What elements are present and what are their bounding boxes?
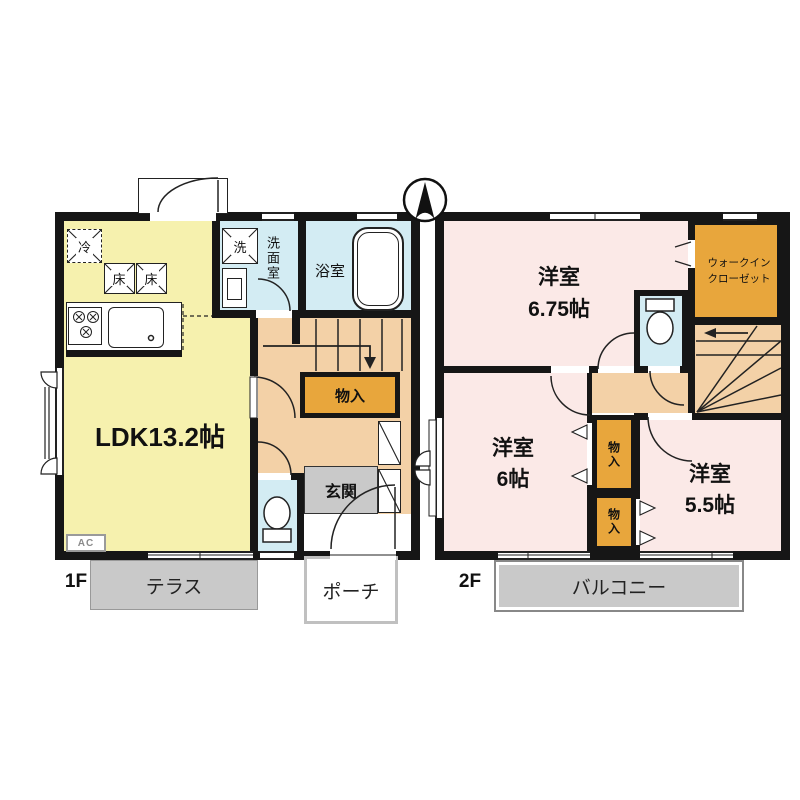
f2-bedroom1-door-gap (598, 366, 634, 373)
f1-wall-wet-bottom (212, 310, 411, 318)
washbasin-bowl (227, 278, 242, 300)
f1-wall-toilet-right (297, 473, 304, 551)
f1-toilet-window (260, 551, 294, 560)
bedroom2-size: 6帖 (497, 464, 530, 495)
floor-hatch-label-1: 床 (111, 270, 127, 286)
bathtub-inner (357, 232, 399, 306)
f1-ldk-door-gap (250, 376, 258, 418)
f2-bedroom3-door-gap (648, 413, 692, 420)
floorplan-canvas: 玄関 物入 AC テラス ポーチ 1F LDK13.2帖 洗面室 浴室 冷 床 … (0, 0, 800, 800)
bath-label: 浴室 (306, 260, 354, 280)
bedroom1-size: 6.75帖 (528, 294, 590, 326)
f1-toilet-door-gap (258, 473, 291, 480)
f2-stairs-area (695, 325, 781, 413)
porch-label: ポーチ (322, 577, 379, 604)
f2-window-wic-top (723, 212, 757, 221)
balcony: バルコニー (494, 560, 744, 612)
f2-wall-wic-bottom (688, 318, 781, 325)
f2-toilet-wall-right (682, 290, 688, 372)
f2-bedroom2-door-gap (551, 366, 589, 373)
f1-storage-box: 物入 (300, 372, 400, 418)
f1-shoe-cabinet-2 (378, 469, 401, 513)
f1-terrace-slider (148, 551, 253, 560)
f2-casement-window (435, 418, 444, 518)
f1-entrance-door-gap (330, 551, 396, 560)
f2-balcony-slider-right (640, 551, 733, 560)
stove-icon (68, 307, 102, 345)
bedroom2-label: 洋室 6帖 (458, 432, 568, 496)
kitchen-counter-edge (66, 350, 182, 357)
f2-closet2-door-strip (636, 499, 640, 545)
f1-wall-stairs-stub (292, 318, 300, 344)
porch: ポーチ (304, 556, 398, 624)
f2-toilet-room (640, 296, 682, 366)
ac-tag: AC (66, 534, 106, 552)
floor-label-1f: 1F (56, 570, 96, 594)
wic-line1: ウォークイン (708, 255, 771, 271)
entrance-label: 玄関 (325, 478, 357, 502)
f2-hallway (592, 373, 688, 413)
f1-toilet-room (258, 480, 297, 551)
washer-label: 洗 (231, 237, 249, 255)
storage-label: 物入 (335, 385, 365, 406)
ldk-label: LDK13.2帖 (70, 418, 250, 452)
f1-back-door-nook (138, 178, 228, 214)
f1-casement-window (55, 368, 64, 475)
f2-toilet-door-gap (648, 366, 680, 373)
floor-label-2f: 2F (450, 570, 490, 594)
closet2-label: 物入 (592, 496, 636, 548)
closet1-label: 物入 (592, 420, 636, 490)
f1-entrance-hall: 玄関 (304, 466, 378, 514)
fridge-label: 冷 (76, 238, 93, 255)
f1-entrance-tataki (304, 514, 411, 551)
wic-label: ウォークイン クローゼット (697, 253, 781, 289)
f1-back-door-gap (150, 212, 216, 221)
f1-window-bath-top (357, 212, 397, 221)
terrace-label: テラス (146, 572, 203, 599)
f1-wall-washroom-left (212, 221, 220, 318)
f1-shoe-cabinet-1 (378, 421, 401, 465)
f2-window-bedroom1-top (550, 212, 640, 221)
bedroom3-name: 洋室 (689, 459, 731, 490)
f1-window-washroom-top (262, 212, 294, 221)
f2-wic-door-gap (688, 240, 695, 268)
ac-label: AC (78, 538, 94, 549)
bedroom3-label: 洋室 5.5帖 (655, 458, 765, 522)
floor-hatch-label-2: 床 (143, 270, 159, 286)
f2-balcony-slider-left (498, 551, 590, 560)
bedroom1-name: 洋室 (538, 262, 580, 294)
balcony-label: バルコニー (572, 573, 667, 600)
wic-line2: クローゼット (708, 271, 771, 287)
balcony-floor: バルコニー (499, 565, 739, 607)
bedroom3-size: 5.5帖 (685, 490, 735, 521)
sink-icon (108, 307, 164, 348)
bedroom1-label: 洋室 6.75帖 (495, 260, 623, 328)
bedroom2-name: 洋室 (492, 433, 534, 464)
f1-wall-ldk-hall (250, 318, 258, 551)
terrace: テラス (90, 560, 258, 610)
washroom-label: 洗面室 (262, 236, 282, 316)
f1-wall-wash-bath (298, 221, 306, 310)
